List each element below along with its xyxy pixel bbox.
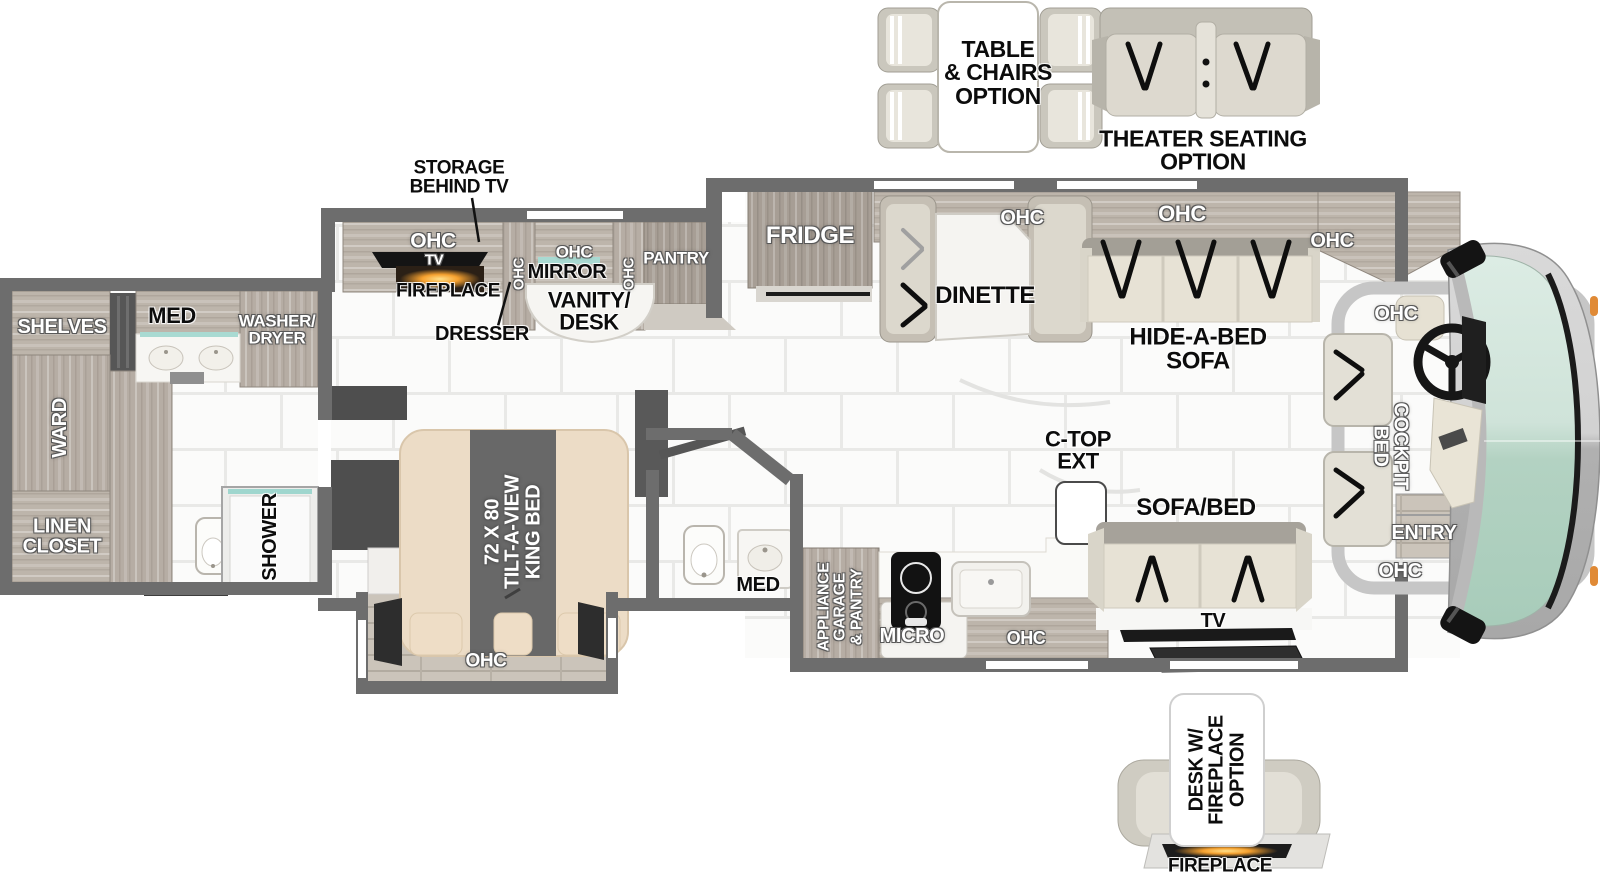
bedroom-closet bbox=[331, 386, 407, 420]
cooktop-icon bbox=[891, 552, 941, 630]
toilet-icon bbox=[684, 526, 724, 584]
hide-a-bed-sofa bbox=[1080, 238, 1320, 322]
dual-sink-vanity bbox=[136, 332, 240, 384]
bedroom-window bbox=[374, 598, 402, 666]
option-card bbox=[1170, 694, 1264, 846]
floorplan-canvas: TABLE & CHAIRS OPTION THEATER SEATING OP… bbox=[0, 0, 1600, 877]
wardrobe bbox=[12, 355, 110, 491]
floorplan-drawing bbox=[0, 0, 1600, 877]
dining-chair bbox=[878, 84, 940, 148]
bedroom-tv bbox=[372, 252, 488, 268]
dining-chair bbox=[878, 8, 940, 72]
dining-table bbox=[938, 2, 1038, 152]
dashboard bbox=[1462, 316, 1486, 404]
theater-seating-option bbox=[1092, 8, 1320, 118]
dinette bbox=[880, 196, 1092, 342]
desk-fireplace-option bbox=[1118, 694, 1330, 868]
kitchen-sink-icon bbox=[952, 562, 1030, 616]
table-chairs-option bbox=[878, 2, 1102, 152]
marker-light bbox=[1590, 296, 1598, 316]
linen-closet bbox=[12, 491, 110, 583]
dinette-table bbox=[936, 214, 1030, 340]
mirror bbox=[538, 257, 600, 264]
living-tv bbox=[1120, 628, 1296, 642]
shower bbox=[222, 487, 318, 593]
fridge bbox=[748, 188, 872, 288]
bedroom-closet bbox=[331, 460, 407, 550]
marker-light bbox=[1590, 566, 1598, 586]
washer-dryer bbox=[240, 291, 318, 387]
appliance-garage bbox=[803, 548, 879, 660]
bedroom-window bbox=[578, 602, 604, 660]
sink-icon bbox=[738, 530, 792, 588]
